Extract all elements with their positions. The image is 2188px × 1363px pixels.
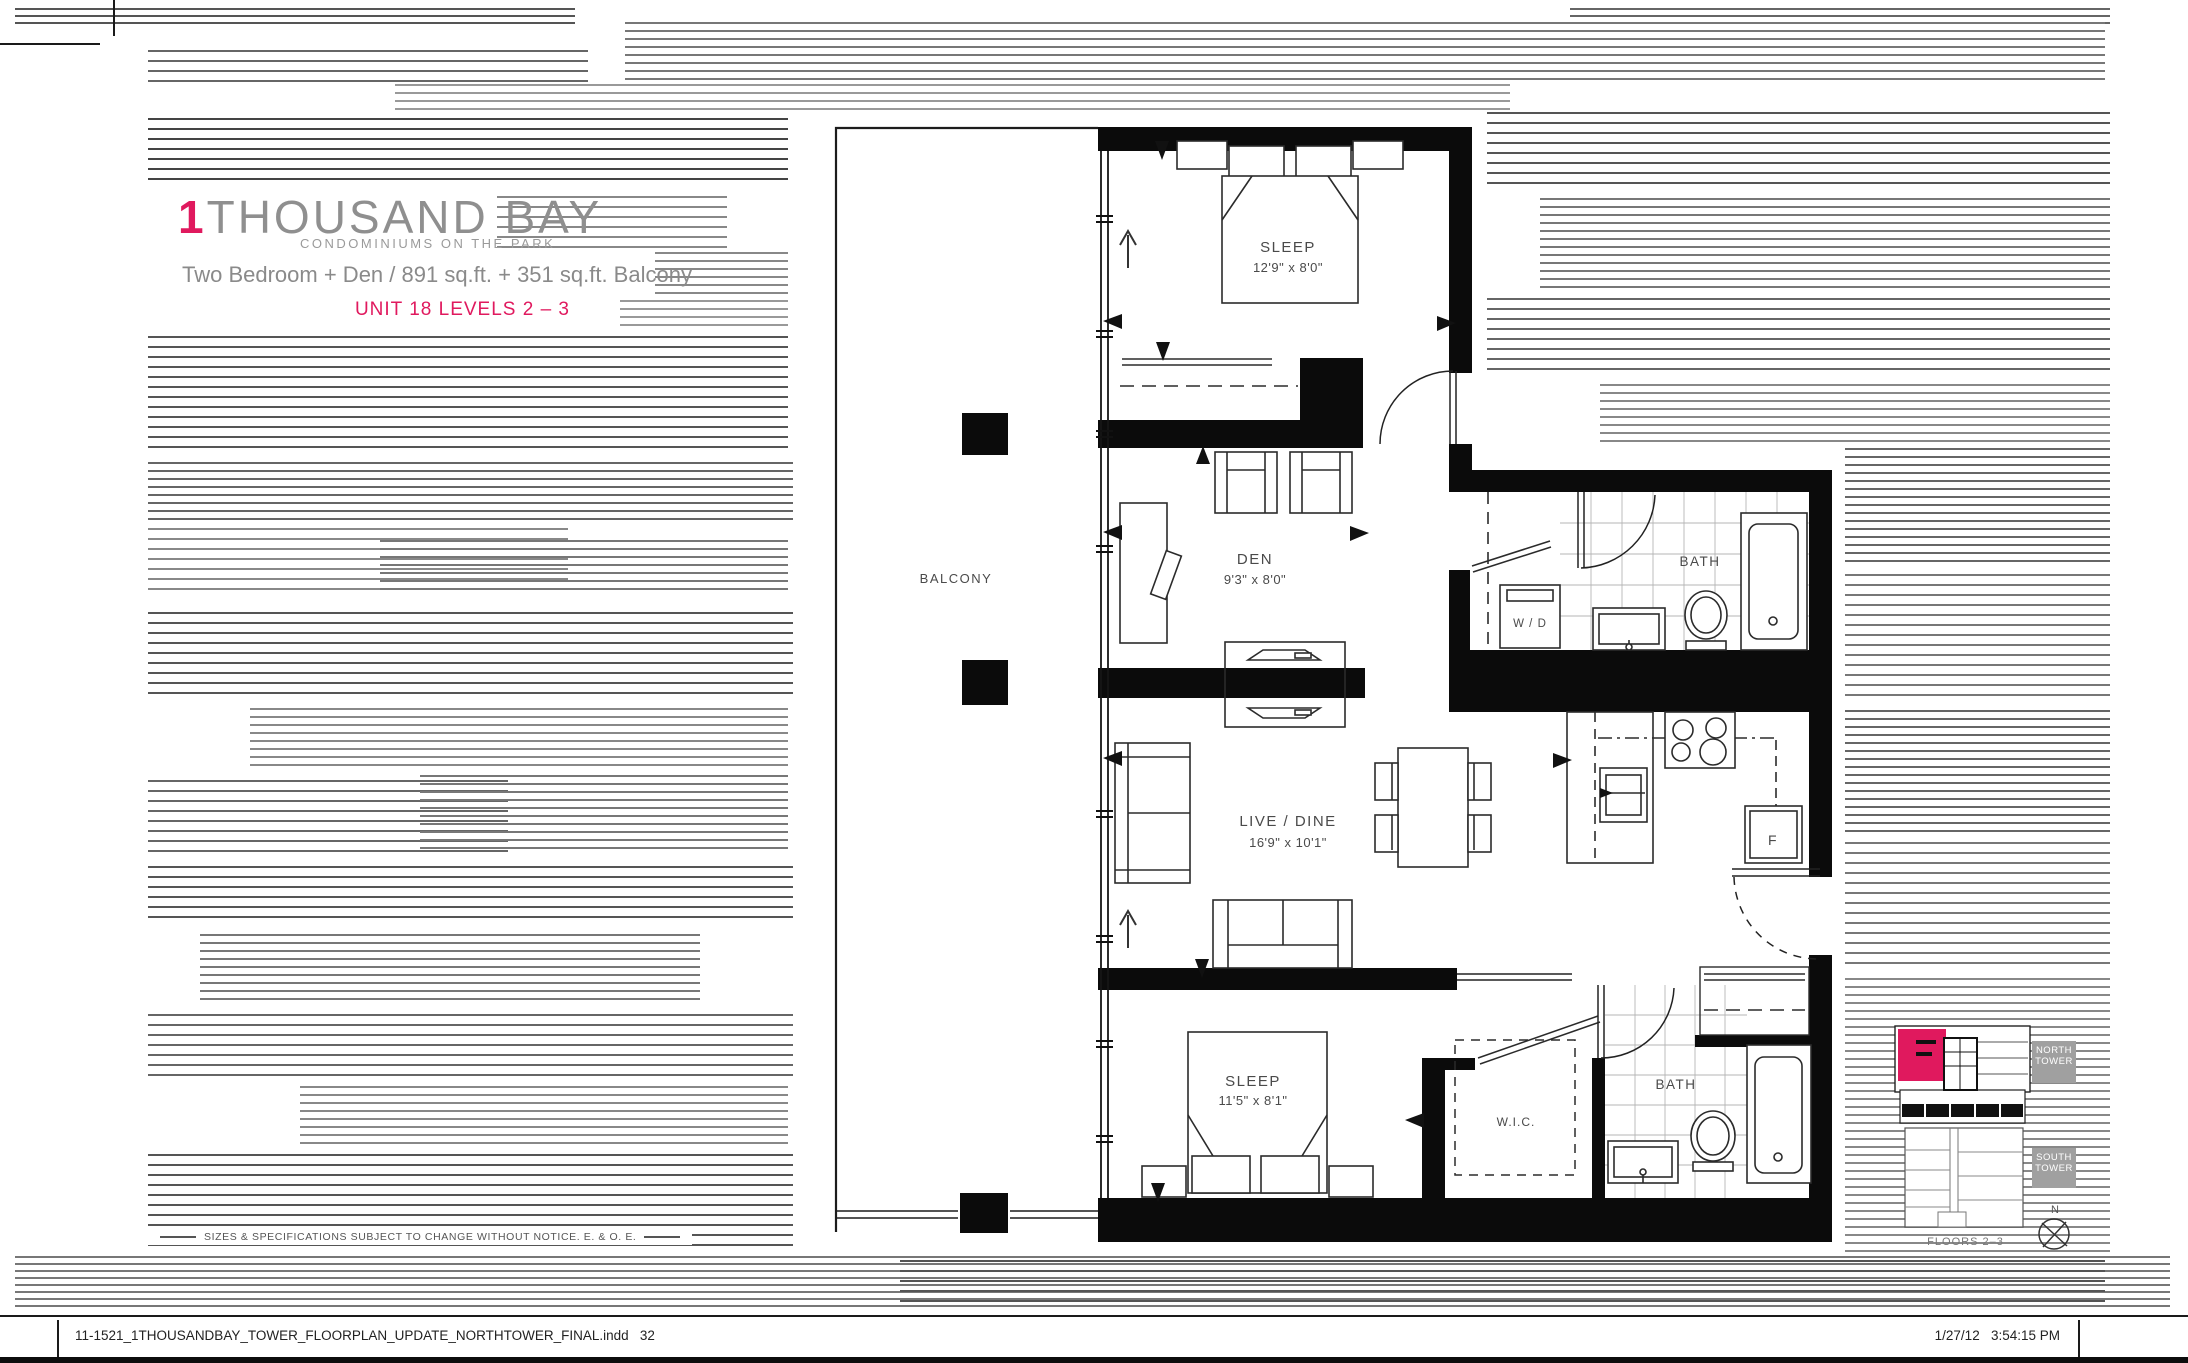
room-dims-sleep1: 12'9" x 8'0" bbox=[1253, 260, 1323, 275]
brand-tagline: CONDOMINIUMS ON THE PARK bbox=[300, 236, 555, 251]
north-tower-label: NORTH TOWER bbox=[2032, 1041, 2076, 1083]
unit-label: UNIT 18 LEVELS 2 – 3 bbox=[180, 299, 570, 321]
floors-label: FLOORS 2–3 bbox=[1918, 1236, 2013, 1248]
disclaimer-dash bbox=[160, 1236, 196, 1238]
room-label-wic: W.I.C. bbox=[1497, 1115, 1536, 1129]
room-label-livedine: LIVE / DINE bbox=[1239, 813, 1336, 830]
crop-mark bbox=[113, 0, 115, 36]
compass-icon bbox=[2039, 1219, 2069, 1249]
footer-timestamp: 1/27/12 3:54:15 PM bbox=[1935, 1328, 2060, 1343]
disclaimer-text: SIZES & SPECIFICATIONS SUBJECT TO CHANGE… bbox=[204, 1231, 636, 1243]
room-label-sleep1: SLEEP bbox=[1260, 239, 1316, 256]
page-bottom-bar bbox=[0, 1357, 2188, 1363]
room-label-wd: W / D bbox=[1513, 618, 1547, 630]
room-label-bath2: BATH bbox=[1655, 1077, 1696, 1092]
room-dims-den: 9'3" x 8'0" bbox=[1224, 572, 1286, 587]
brand-number: 1 bbox=[178, 191, 207, 243]
south-tower-label: SOUTH TOWER bbox=[2032, 1148, 2076, 1188]
compass-north-letter: N bbox=[2047, 1204, 2063, 1216]
footer-filename: 11-1521_1THOUSANDBAY_TOWER_FLOORPLAN_UPD… bbox=[75, 1328, 655, 1343]
disclaimer: SIZES & SPECIFICATIONS SUBJECT TO CHANGE… bbox=[148, 1229, 692, 1245]
footer-separator bbox=[0, 1315, 2188, 1317]
room-label-fridge: F bbox=[1768, 832, 1778, 848]
room-dims-sleep2: 11'5" x 8'1" bbox=[1218, 1093, 1287, 1108]
crop-mark bbox=[0, 43, 100, 45]
room-label-sleep2: SLEEP bbox=[1225, 1073, 1281, 1090]
disclaimer-dash bbox=[644, 1236, 680, 1238]
room-label-den: DEN bbox=[1237, 551, 1273, 568]
room-label-bath1: BATH bbox=[1679, 554, 1720, 569]
room-dims-livedine: 16'9" x 10'1" bbox=[1249, 835, 1327, 850]
plan-description: Two Bedroom + Den / 891 sq.ft. + 351 sq.… bbox=[182, 262, 692, 288]
room-label-balcony: BALCONY bbox=[920, 571, 993, 586]
page: { "header": { "number": "1", "name": "TH… bbox=[0, 0, 2188, 1363]
